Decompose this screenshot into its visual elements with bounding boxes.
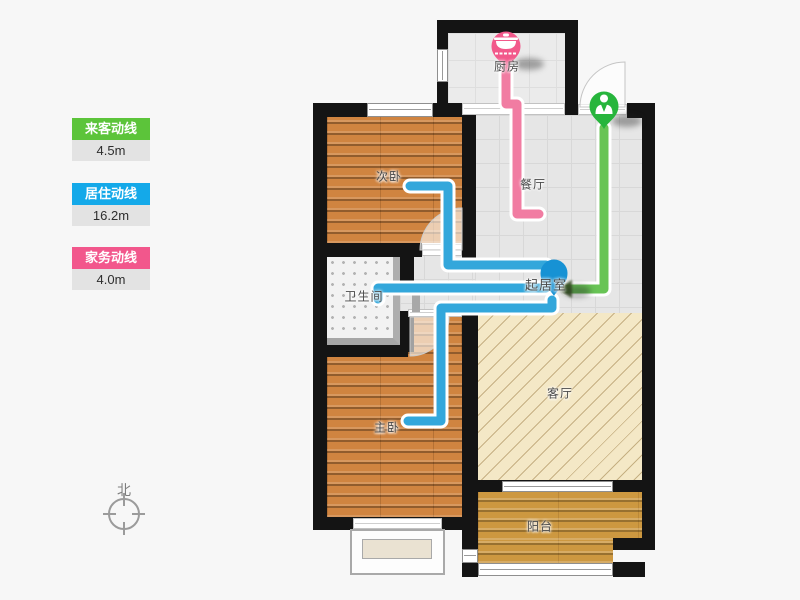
wall: [613, 538, 655, 550]
wall: [465, 563, 478, 577]
room-label-living: 客厅: [547, 385, 573, 402]
wall: [437, 20, 578, 33]
room-label-master: 主卧: [374, 419, 400, 436]
bay-window-opening: [353, 518, 442, 529]
window: [478, 563, 613, 576]
room-balcony: [478, 492, 642, 540]
legend-item-resident[interactable]: 居住动线 16.2m: [72, 183, 150, 226]
legend-guest-title[interactable]: 来客动线: [72, 118, 150, 140]
wall: [437, 33, 448, 49]
entrance-opening: [578, 104, 627, 115]
legend-chore-title[interactable]: 家务动线: [72, 247, 150, 269]
room-label-dining: 餐厅: [520, 176, 546, 193]
wall: [613, 562, 645, 577]
person-icon: [600, 95, 608, 103]
wall: [462, 103, 476, 258]
bedroom2-door-opening: [422, 244, 462, 256]
room-label-bathroom: 卫生间: [344, 288, 383, 305]
window: [367, 103, 433, 117]
compass-north-label: 北: [117, 480, 131, 500]
window: [502, 481, 613, 492]
entrance-door-arc: [580, 62, 625, 107]
wall: [313, 103, 327, 530]
legend-item-guest[interactable]: 来客动线 4.5m: [72, 118, 150, 161]
window: [462, 549, 478, 563]
wall: [642, 115, 655, 492]
room-label-balcony: 阳台: [527, 518, 553, 535]
legend-item-chore[interactable]: 家务动线 4.0m: [72, 247, 150, 290]
room-balcony-lower: [478, 540, 613, 563]
bay-window-sill: [362, 539, 432, 559]
bathroom-door-leaf: [412, 284, 420, 312]
legend-resident-title[interactable]: 居住动线: [72, 183, 150, 205]
room-label-kitchen: 厨房: [494, 58, 520, 75]
legend-resident-value: 16.2m: [72, 205, 150, 226]
floorplan-canvas: 厨房 餐厅 次卧 起居室 卫生间 主卧 客厅 阳台 来客动线 4.5m 居住动线…: [0, 0, 800, 600]
window: [437, 49, 448, 82]
wall: [437, 82, 448, 105]
legend-chore-value: 4.0m: [72, 269, 150, 290]
wall: [400, 255, 414, 284]
wall: [462, 313, 478, 577]
room-label-hall: 起居室: [525, 275, 567, 294]
room-label-bedroom2: 次卧: [376, 168, 402, 185]
kitchen-opening: [462, 103, 565, 115]
wall: [313, 345, 408, 357]
compass-circle: [109, 499, 139, 529]
wall: [565, 33, 578, 115]
wall: [433, 103, 462, 117]
legend-guest-value: 4.5m: [72, 140, 150, 161]
room-master-bedroom-entry: [408, 316, 467, 356]
wall: [642, 480, 655, 540]
